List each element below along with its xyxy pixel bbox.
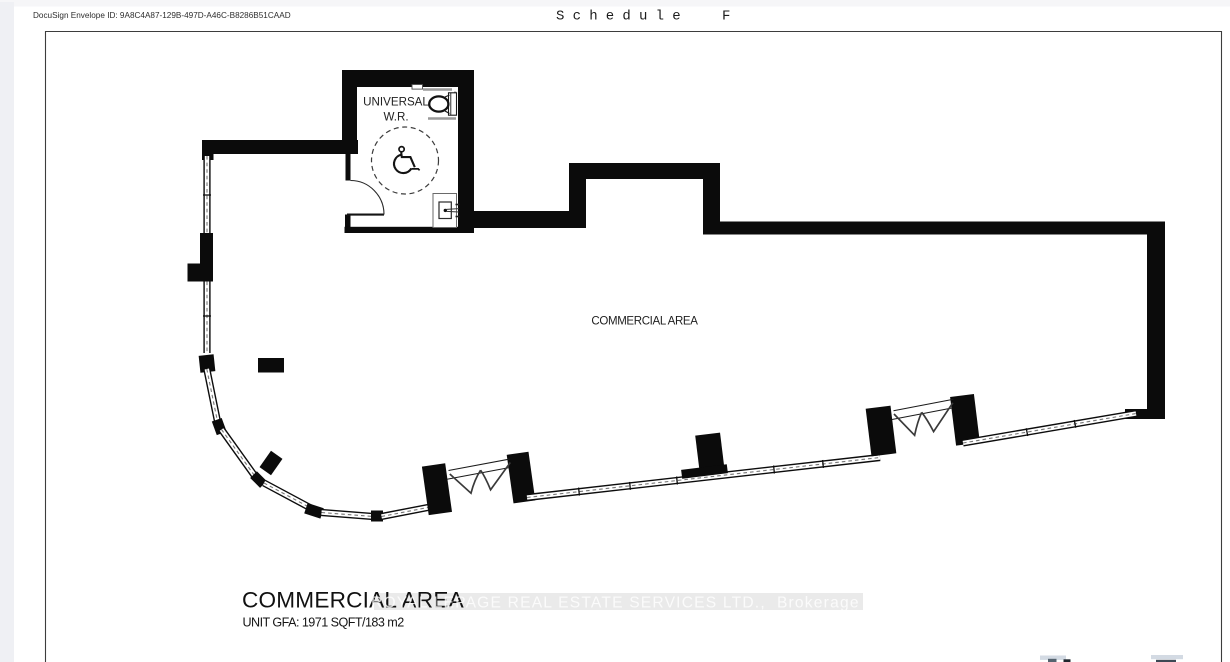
svg-text:DocuSign Envelope ID: 9A8C4A87: DocuSign Envelope ID: 9A8C4A87-129B-497D… (33, 11, 291, 20)
svg-text:ROYAL LEPAGE REAL ESTATE SERVI: ROYAL LEPAGE REAL ESTATE SERVICES LTD., … (371, 594, 860, 611)
svg-text:UNIT GFA: 1971 SQFT/183 m2: UNIT GFA: 1971 SQFT/183 m2 (243, 616, 405, 630)
svg-text:Schedule F: Schedule F (556, 9, 739, 25)
svg-text:W.R.: W.R. (383, 111, 408, 124)
svg-text:COMMERCIAL AREA: COMMERCIAL AREA (591, 316, 698, 328)
svg-text:UNIVERSAL: UNIVERSAL (363, 96, 429, 109)
